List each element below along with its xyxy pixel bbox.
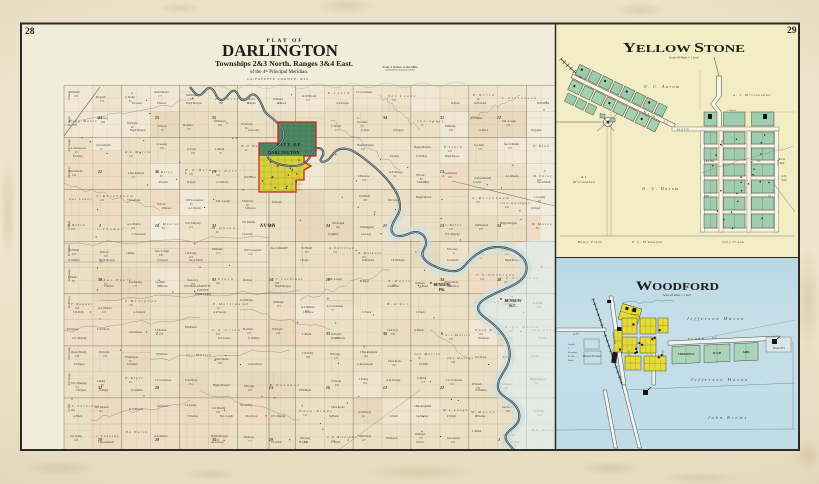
svg-text:Ed Walsh: Ed Walsh — [125, 430, 148, 434]
svg-text:PK.: PK. — [439, 288, 445, 292]
svg-text:Sat Leahy: Sat Leahy — [240, 403, 253, 407]
svg-text:WEST: WEST — [720, 140, 723, 147]
svg-text:Hiram Pickett: Hiram Pickett — [582, 354, 602, 358]
svg-text:Hugh Moore: Hugh Moore — [416, 195, 432, 199]
svg-text:F.Dodge: F.Dodge — [244, 384, 255, 388]
svg-text:MAIN: MAIN — [677, 128, 690, 132]
svg-text:Bank: Bank — [568, 359, 574, 362]
svg-text:A.L.Martin: A.L.Martin — [188, 207, 201, 210]
svg-text:P.Conley: P.Conley — [132, 102, 143, 105]
svg-text:Henry Frank: Henry Frank — [577, 240, 603, 244]
svg-text:D.Ryan: D.Ryan — [247, 102, 256, 105]
svg-text:J.Thomas: J.Thomas — [187, 415, 198, 418]
svg-text:BENBOW: BENBOW — [433, 283, 450, 287]
svg-text:D.Ryan: D.Ryan — [187, 181, 196, 184]
svg-text:J.Cassidy: J.Cassidy — [534, 195, 546, 199]
svg-text:W.F.Carpenter: W.F.Carpenter — [244, 248, 261, 252]
svg-text:D.F.Conley: D.F.Conley — [218, 337, 231, 340]
svg-text:Jas.Murray: Jas.Murray — [444, 171, 458, 175]
svg-text:W.Doyle: W.Doyle — [68, 116, 71, 126]
svg-text:P.Conley: P.Conley — [73, 155, 84, 158]
svg-text:J.C.Cochrane: J.C.Cochrane — [446, 378, 463, 382]
svg-text:Hugh Moore: Hugh Moore — [445, 155, 460, 158]
svg-text:W.O'Hara: W.O'Hara — [416, 155, 428, 158]
svg-text:T.O'Neill: T.O'Neill — [359, 194, 370, 198]
svg-text:A.J.Martin: A.J.Martin — [444, 333, 471, 337]
svg-text:F.Wagner: F.Wagner — [393, 129, 404, 132]
svg-text:Scale 2 Inches to the Mile: Scale 2 Inches to the Mile — [382, 65, 418, 69]
svg-text:DARLINGTON: DARLINGTON — [268, 151, 300, 155]
svg-text:30: 30 — [496, 277, 502, 282]
svg-text:M.Mason: M.Mason — [470, 410, 496, 414]
svg-text:32: 32 — [97, 385, 102, 390]
svg-text:Hugh Morgan: Hugh Morgan — [213, 383, 230, 387]
svg-text:Sat Leahy: Sat Leahy — [248, 129, 260, 132]
svg-text:W.Rigel: W.Rigel — [415, 432, 425, 436]
svg-text:35: 35 — [211, 437, 216, 442]
svg-text:G.Tyler: G.Tyler — [473, 181, 482, 184]
svg-text:W.Doyle: W.Doyle — [127, 121, 138, 125]
svg-text:M.Burke: M.Burke — [273, 300, 284, 304]
svg-text:J.Plush: J.Plush — [420, 285, 429, 288]
svg-text:D.Ryan: D.Ryan — [532, 144, 550, 148]
svg-text:F.Dodge: F.Dodge — [330, 352, 341, 356]
svg-text:A. I.: A. I. — [580, 175, 587, 179]
svg-text:F.Wagner: F.Wagner — [127, 363, 138, 366]
svg-text:F.Wagner: F.Wagner — [67, 327, 78, 331]
svg-text:34: 34 — [496, 223, 501, 228]
svg-text:W.Doyle: W.Doyle — [99, 350, 110, 354]
svg-text:W.Post: W.Post — [100, 250, 109, 254]
svg-text:34: 34 — [382, 115, 387, 120]
svg-text:Ed Walsh: Ed Walsh — [241, 122, 253, 126]
svg-text:21: 21 — [97, 115, 102, 120]
svg-text:MºCranahan: MºCranahan — [572, 180, 595, 184]
svg-text:Owen Brady: Owen Brady — [299, 409, 334, 413]
svg-text:J.Thomas: J.Thomas — [97, 227, 124, 231]
svg-text:A.L.Martin: A.L.Martin — [505, 174, 519, 178]
svg-text:L.Stevenson: L.Stevenson — [71, 146, 86, 150]
svg-text:21: 21 — [97, 169, 102, 174]
svg-text:Watt: Watt — [780, 162, 785, 165]
svg-text:Hugh Morgan: Hugh Morgan — [186, 102, 202, 105]
svg-text:W.Doyle: W.Doyle — [272, 327, 283, 331]
svg-text:13: 13 — [440, 223, 444, 228]
svg-text:W.F.Carpenter: W.F.Carpenter — [186, 198, 203, 202]
svg-text:M.Dougal: M.Dougal — [332, 221, 344, 225]
svg-text:T.Slavin: T.Slavin — [331, 379, 342, 383]
svg-text:Jas.Murray: Jas.Murray — [447, 356, 474, 360]
svg-text:D.Ryan: D.Ryan — [360, 279, 370, 283]
svg-text:M.Holland: M.Holland — [537, 102, 550, 105]
svg-text:36: 36 — [154, 169, 160, 174]
svg-text:M.Burke: M.Burke — [329, 415, 340, 418]
svg-text:D.Ryan: D.Ryan — [451, 102, 460, 105]
svg-text:Jas.Liscy: Jas.Liscy — [387, 328, 399, 332]
svg-text:YELLOW STONE: YELLOW STONE — [623, 40, 745, 55]
svg-text:M.L.Lough: M.L.Lough — [155, 249, 169, 253]
svg-text:J.W.Polly: J.W.Polly — [73, 311, 84, 314]
svg-text:W.Rigel: W.Rigel — [68, 221, 71, 230]
svg-text:Sat Leahy: Sat Leahy — [70, 434, 83, 438]
svg-text:A.R.Savage: A.R.Savage — [68, 138, 71, 152]
svg-text:M.L.Lough: M.L.Lough — [442, 408, 468, 412]
svg-text:Sat Leahy: Sat Leahy — [69, 197, 93, 201]
svg-text:Albert Redo: Albert Redo — [154, 90, 169, 94]
svg-text:W.C.Murphy: W.C.Murphy — [271, 415, 286, 418]
svg-text:12: 12 — [383, 385, 387, 390]
svg-text:Jos.Dudley: Jos.Dudley — [129, 280, 143, 284]
svg-text:34: 34 — [439, 277, 444, 282]
svg-text:CENTER: CENTER — [704, 160, 714, 163]
svg-text:Jas.Wilson: Jas.Wilson — [129, 330, 142, 334]
svg-text:Tannery: Tannery — [631, 313, 640, 316]
svg-text:Scale 30 Rods = 1 Inch: Scale 30 Rods = 1 Inch — [669, 56, 699, 60]
svg-text:J.C.Cochrane: J.C.Cochrane — [155, 378, 172, 382]
svg-text:T.A.Orton: T.A.Orton — [212, 328, 241, 332]
svg-text:D.Ryan: D.Ryan — [243, 278, 253, 282]
svg-text:A.Sullivan: A.Sullivan — [387, 285, 400, 288]
svg-text:A.R.Savage: A.R.Savage — [68, 372, 71, 386]
svg-text:L.Plush: L.Plush — [389, 415, 398, 418]
svg-text:C.Wood: C.Wood — [331, 124, 341, 128]
svg-text:M.Holland: M.Holland — [475, 223, 489, 227]
svg-text:J.C.Cochrane: J.C.Cochrane — [356, 90, 373, 94]
svg-text:W.O'Hara: W.O'Hara — [244, 175, 257, 179]
svg-text:J.Riley: J.Riley — [126, 251, 135, 255]
svg-text:W.Doyle: W.Doyle — [331, 332, 342, 336]
svg-text:L.Plush: L.Plush — [215, 147, 225, 151]
svg-text:Hugh Morgan: Hugh Morgan — [275, 285, 291, 288]
svg-text:C.School: C.School — [727, 109, 736, 112]
svg-text:J.Monroe: J.Monroe — [358, 174, 370, 178]
svg-text:H.Alber: H.Alber — [243, 327, 253, 331]
svg-text:M.Mason: M.Mason — [531, 222, 553, 226]
svg-text:F.Wagner: F.Wagner — [74, 363, 85, 366]
svg-text:P.Lynch: P.Lynch — [327, 91, 351, 95]
svg-text:J.Cassidy: J.Cassidy — [185, 403, 197, 407]
svg-text:M.Carey: M.Carey — [532, 174, 553, 178]
svg-text:35: 35 — [211, 115, 216, 120]
svg-text:ADD: ADD — [743, 350, 751, 354]
svg-text:2: 2 — [98, 223, 101, 228]
svg-text:P.Donahue: P.Donahue — [269, 383, 301, 387]
svg-text:of the 4th Principal Meridian.: of the 4th Principal Meridian. — [250, 69, 308, 75]
svg-text:S.Harrow: S.Harrow — [157, 404, 169, 408]
svg-text:28: 28 — [154, 437, 160, 442]
svg-text:P.Mulligan: P.Mulligan — [417, 181, 430, 184]
svg-text:2: 2 — [497, 437, 500, 442]
svg-text:School Nº1: School Nº1 — [773, 347, 786, 350]
svg-text:R.W.Briody: R.W.Briody — [302, 94, 317, 98]
svg-text:S.Harrow: S.Harrow — [157, 285, 168, 288]
svg-text:C.Frank: C.Frank — [125, 95, 135, 99]
svg-text:A.J.Martin: A.J.Martin — [216, 181, 229, 184]
svg-text:L.Plush: L.Plush — [302, 332, 312, 336]
svg-text:W.C.Murphy: W.C.Murphy — [445, 233, 460, 236]
svg-text:S.Harrow: S.Harrow — [242, 199, 254, 203]
svg-text:P.Moore: P.Moore — [157, 102, 167, 105]
svg-text:Hugh Morgan: Hugh Morgan — [130, 129, 146, 132]
svg-text:V.Clark: V.Clark — [68, 403, 71, 412]
svg-text:A.L.Martin: A.L.Martin — [124, 150, 152, 154]
svg-text:31: 31 — [439, 115, 444, 120]
svg-text:Rev R.: Rev R. — [778, 158, 786, 161]
svg-text:Jos.Dell: Jos.Dell — [155, 280, 165, 284]
svg-text:M.Holland: M.Holland — [474, 102, 487, 105]
svg-text:P.Mulligan: P.Mulligan — [212, 302, 246, 306]
svg-text:G.Tyler: G.Tyler — [361, 129, 370, 132]
svg-text:H.Alber: H.Alber — [386, 302, 410, 306]
svg-text:W.Doyle: W.Doyle — [388, 279, 412, 283]
svg-text:J.C.Cochrane: J.C.Cochrane — [327, 304, 344, 308]
svg-text:G.Rosenbaum: G.Rosenbaum — [474, 176, 492, 180]
svg-text:A.R.Savage: A.R.Savage — [68, 346, 71, 360]
svg-text:A.L.Martin: A.L.Martin — [95, 405, 109, 409]
svg-text:N.Walkins: N.Walkins — [131, 389, 143, 392]
svg-text:Jos.Tracy: Jos.Tracy — [475, 355, 487, 359]
svg-text:Jos.Dudley: Jos.Dudley — [240, 298, 254, 302]
svg-text:F. L. MºDonald: F. L. MºDonald — [631, 240, 662, 244]
svg-text:MAIN: MAIN — [627, 350, 630, 357]
svg-text:28: 28 — [154, 385, 160, 390]
svg-text:Hugh Morgan: Hugh Morgan — [500, 221, 517, 225]
svg-text:J.C.Cochrane: J.C.Cochrane — [271, 277, 304, 281]
svg-text:P.Lynch: P.Lynch — [96, 95, 106, 99]
svg-text:Sat Leahy: Sat Leahy — [68, 167, 71, 178]
svg-text:A.R.Savage: A.R.Savage — [386, 378, 401, 382]
svg-text:G.Rosenbaum: G.Rosenbaum — [357, 363, 374, 366]
svg-text:John Krems: John Krems — [708, 415, 749, 420]
svg-text:A. J. MºCranahan: A. J. MºCranahan — [732, 93, 771, 97]
svg-text:A.E.Kruger: A.E.Kruger — [336, 102, 349, 105]
svg-text:S.Osgood: S.Osgood — [157, 259, 169, 262]
svg-text:J.Plush: J.Plush — [300, 259, 309, 262]
svg-text:A.Sullivan: A.Sullivan — [358, 410, 371, 414]
svg-text:J.Fahey: J.Fahey — [359, 377, 369, 381]
svg-text:Keedle: Keedle — [568, 355, 576, 358]
svg-text:M.Holland: M.Holland — [362, 259, 375, 262]
svg-text:W.Rigel: W.Rigel — [125, 376, 144, 380]
svg-text:M.L.Lough: M.L.Lough — [328, 277, 342, 281]
svg-text:M.Carey: M.Carey — [300, 436, 311, 440]
svg-text:L.Plush: L.Plush — [417, 376, 427, 380]
svg-text:N.Walkins: N.Walkins — [68, 259, 80, 262]
svg-text:P.Conley: P.Conley — [357, 120, 368, 124]
svg-text:Hugh Morgan: Hugh Morgan — [414, 145, 431, 149]
svg-text:A.Black: A.Black — [479, 129, 489, 132]
svg-text:33: 33 — [325, 331, 330, 336]
svg-text:L.Stevenson: L.Stevenson — [501, 96, 538, 100]
svg-text:POOR FARM: POOR FARM — [195, 293, 211, 296]
svg-text:C.Frank: C.Frank — [362, 311, 372, 314]
svg-text:Hugh Morgan: Hugh Morgan — [357, 143, 374, 147]
svg-text:Thos.Poole: Thos.Poole — [127, 198, 141, 202]
svg-text:Thos.Poole: Thos.Poole — [100, 278, 133, 282]
svg-text:24: 24 — [325, 223, 330, 228]
svg-text:N.Walkins: N.Walkins — [357, 251, 382, 255]
svg-text:G.Tyler: G.Tyler — [187, 147, 196, 151]
svg-text:O. C. Aurum: O. C. Aurum — [644, 84, 681, 89]
svg-text:M.Burke: M.Burke — [445, 124, 456, 128]
svg-text:J.Buckingham: J.Buckingham — [360, 350, 378, 354]
svg-text:D.V.B: D.V.B — [713, 351, 722, 355]
svg-text:T.Slavin: T.Slavin — [68, 90, 71, 100]
svg-text:2ND: 2ND — [704, 195, 709, 198]
svg-text:A.L.Martin: A.L.Martin — [301, 305, 315, 309]
svg-text:J.P.Williams: J.P.Williams — [391, 259, 405, 262]
svg-text:H.Alber: H.Alber — [299, 441, 308, 444]
svg-text:T.Benignan: T.Benignan — [360, 225, 374, 229]
svg-text:S.Harrow: S.Harrow — [156, 352, 168, 356]
svg-text:COUNTY: COUNTY — [197, 289, 209, 292]
svg-text:W.Rigel: W.Rigel — [531, 207, 540, 210]
svg-text:M.L.Lough: M.L.Lough — [216, 199, 230, 203]
svg-text:J.W.Polly: J.W.Polly — [302, 351, 314, 355]
svg-text:Jos.Dell: Jos.Dell — [474, 143, 484, 147]
svg-text:W.Post: W.Post — [416, 441, 424, 444]
svg-text:T.A.Orton: T.A.Orton — [185, 378, 198, 382]
svg-text:A.R.Savage: A.R.Savage — [68, 268, 71, 282]
svg-text:12: 12 — [497, 115, 501, 120]
svg-text:P.Welsh: P.Welsh — [447, 415, 456, 418]
svg-text:14: 14 — [269, 277, 273, 282]
svg-text:F.Dodge: F.Dodge — [476, 415, 486, 418]
svg-text:A.Black: A.Black — [277, 102, 287, 105]
svg-text:29: 29 — [787, 26, 797, 36]
svg-text:22: 22 — [439, 385, 444, 390]
svg-text:Job Martin: Job Martin — [212, 406, 226, 410]
svg-text:BENBOW: BENBOW — [504, 299, 521, 303]
svg-text:J.Buckingham: J.Buckingham — [414, 404, 432, 408]
svg-text:P.Welsh: P.Welsh — [70, 90, 80, 94]
svg-text:L.Plush: L.Plush — [416, 311, 425, 314]
svg-text:Scale 20 Rods = 1 Inch: Scale 20 Rods = 1 Inch — [663, 293, 692, 297]
svg-text:A.Sullivan: A.Sullivan — [328, 246, 355, 250]
svg-text:Jefferson Mason: Jefferson Mason — [687, 316, 746, 321]
svg-text:M.Carey: M.Carey — [388, 198, 399, 202]
svg-text:Keephart: Keephart — [568, 351, 577, 354]
svg-text:P.Welsh: P.Welsh — [272, 200, 282, 204]
svg-text:P.Mulligan: P.Mulligan — [299, 389, 312, 392]
svg-text:T.O'Neill: T.O'Neill — [301, 246, 312, 250]
svg-text:Jas.Liscy: Jas.Liscy — [361, 233, 372, 236]
svg-text:M.Mason: M.Mason — [185, 325, 197, 329]
svg-text:W.O'Hara: W.O'Hara — [185, 168, 213, 172]
svg-text:J.Monroe: J.Monroe — [303, 311, 314, 314]
svg-text:F.Wagner: F.Wagner — [471, 116, 482, 120]
svg-text:28: 28 — [25, 27, 35, 37]
svg-text:Jno.Schmidt: Jno.Schmidt — [189, 259, 203, 262]
svg-text:Owen Brady: Owen Brady — [71, 350, 87, 354]
svg-text:Thos.Poole: Thos.Poole — [388, 359, 402, 363]
svg-text:Job Martin: Job Martin — [414, 352, 441, 356]
svg-text:M.Quinn: M.Quinn — [531, 129, 542, 132]
svg-text:P.Lynch: P.Lynch — [443, 145, 463, 149]
svg-text:Jas.Liscy: Jas.Liscy — [187, 278, 199, 282]
svg-text:T.Horan: T.Horan — [157, 124, 167, 128]
svg-text:Jno.Schmidt: Jno.Schmidt — [271, 246, 286, 250]
svg-text:A.Black: A.Black — [73, 415, 83, 418]
svg-text:J.Monroe: J.Monroe — [158, 222, 180, 226]
svg-text:CLARK: CLARK — [688, 336, 706, 341]
svg-text:P.Welsh: P.Welsh — [419, 363, 428, 366]
svg-text:A.W.: A.W. — [781, 175, 787, 178]
svg-text:M.L.Lough: M.L.Lough — [502, 119, 516, 123]
svg-text:Jno.Schmidt: Jno.Schmidt — [537, 181, 551, 184]
svg-text:Chas.Kinnear: Chas.Kinnear — [128, 171, 144, 175]
svg-text:F.Wagner: F.Wagner — [70, 302, 93, 306]
svg-text:Thos.Poole: Thos.Poole — [331, 405, 345, 409]
svg-text:W.C.Murphy: W.C.Murphy — [72, 337, 87, 340]
svg-text:Owen Brady: Owen Brady — [331, 337, 346, 340]
svg-text:M.Carey: M.Carey — [447, 247, 458, 251]
svg-text:Joseph: Joseph — [568, 343, 576, 346]
svg-text:T.Benignan: T.Benignan — [125, 299, 158, 303]
svg-text:31: 31 — [211, 277, 216, 282]
svg-text:M.Mason: M.Mason — [478, 337, 489, 340]
svg-text:Jno.Schmidt: Jno.Schmidt — [504, 142, 519, 146]
svg-text:32: 32 — [211, 223, 216, 228]
svg-text:DARLINGTON: DARLINGTON — [222, 41, 338, 60]
svg-text:R.W.Briody: R.W.Briody — [129, 407, 144, 411]
svg-text:Townships 2&3 North. Ranges 3&: Townships 2&3 North. Ranges 3&4 East. — [215, 60, 353, 68]
svg-text:L.Plush: L.Plush — [472, 429, 482, 433]
svg-text:1: 1 — [156, 331, 158, 336]
svg-text:W.Post: W.Post — [157, 202, 166, 206]
svg-text:AVON: AVON — [260, 224, 277, 229]
svg-text:13: 13 — [440, 169, 444, 174]
svg-text:C.Wood: C.Wood — [331, 441, 341, 444]
svg-text:P.Lynch: P.Lynch — [390, 155, 400, 158]
svg-text:L.Stevenson: L.Stevenson — [132, 233, 147, 236]
svg-text:A.E.Kruger: A.E.Kruger — [389, 170, 403, 174]
svg-text:J.Riley: J.Riley — [445, 223, 462, 227]
svg-text:John Frank: John Frank — [722, 240, 744, 244]
svg-text:36: 36 — [382, 331, 388, 336]
svg-text:H.Alber: H.Alber — [183, 123, 193, 127]
svg-text:T.Slavin: T.Slavin — [104, 285, 114, 288]
svg-text:Jas.Galagan: Jas.Galagan — [96, 143, 111, 147]
svg-text:Scott: Scott — [781, 179, 786, 182]
svg-text:G.Rosenbaum: G.Rosenbaum — [472, 196, 510, 200]
svg-text:P.Mulligan: P.Mulligan — [125, 355, 139, 359]
svg-text:WEST: WEST — [661, 350, 664, 357]
svg-text:P.Lynch: P.Lynch — [159, 181, 169, 184]
svg-text:A.L.Martin: A.L.Martin — [127, 222, 141, 226]
svg-text:P.Welsh: P.Welsh — [472, 382, 482, 386]
svg-text:P.Moore: P.Moore — [162, 207, 172, 210]
svg-text:J.MASON'S: J.MASON'S — [678, 352, 695, 356]
svg-text:Jas.Murray: Jas.Murray — [416, 415, 429, 418]
svg-text:Geo.Gabel: Geo.Gabel — [447, 436, 460, 440]
svg-text:J.Riley: J.Riley — [97, 379, 106, 383]
svg-text:LAFAYETTE: LAFAYETTE — [195, 285, 211, 288]
svg-text:Jefferson Mason: Jefferson Mason — [691, 377, 750, 382]
svg-text:A.L.Martin: A.L.Martin — [98, 306, 112, 310]
svg-text:CITY OF: CITY OF — [277, 143, 301, 147]
svg-text:W.Post: W.Post — [416, 173, 425, 177]
svg-text:M.Holland: M.Holland — [358, 434, 372, 438]
svg-text:O. C. Durum: O. C. Durum — [642, 186, 679, 191]
svg-text:Albert Redo: Albert Redo — [214, 357, 229, 361]
svg-text:ST.: ST. — [712, 336, 720, 340]
svg-text:J.Cassidy: J.Cassidy — [242, 233, 253, 236]
svg-text:W.C.Murphy: W.C.Murphy — [185, 221, 201, 225]
svg-text:St.C.: St.C. — [509, 304, 517, 308]
svg-text:T.A.Orton: T.A.Orton — [97, 327, 110, 331]
svg-text:W.Rigel: W.Rigel — [273, 97, 283, 101]
